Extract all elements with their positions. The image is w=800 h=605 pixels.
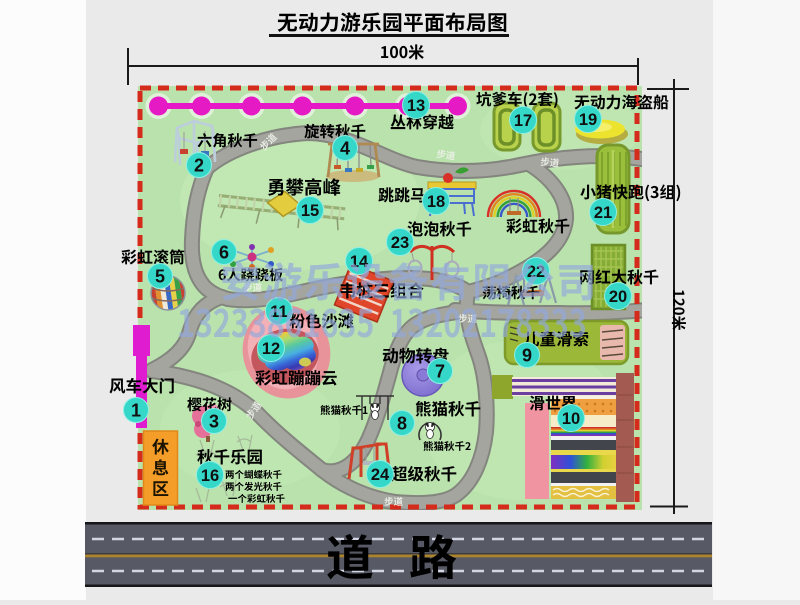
svg-text:4: 4 xyxy=(340,138,350,158)
svg-text:10: 10 xyxy=(562,410,580,428)
svg-text:8: 8 xyxy=(397,413,407,433)
svg-text:3: 3 xyxy=(209,411,219,431)
svg-text:12: 12 xyxy=(262,340,280,358)
svg-text:15: 15 xyxy=(301,202,319,220)
svg-text:19: 19 xyxy=(579,111,597,129)
svg-text:23: 23 xyxy=(391,234,409,252)
svg-text:20: 20 xyxy=(609,288,627,306)
svg-text:5: 5 xyxy=(155,266,165,286)
svg-text:21: 21 xyxy=(594,204,612,222)
svg-text:16: 16 xyxy=(201,467,219,485)
svg-text:9: 9 xyxy=(522,345,532,365)
svg-text:2: 2 xyxy=(194,155,204,175)
svg-text:18: 18 xyxy=(427,193,445,211)
svg-text:1: 1 xyxy=(131,400,141,420)
svg-text:7: 7 xyxy=(435,361,445,381)
svg-text:13: 13 xyxy=(407,97,425,115)
svg-text:17: 17 xyxy=(514,112,532,130)
svg-text:24: 24 xyxy=(371,466,390,484)
svg-text:6: 6 xyxy=(219,242,229,262)
